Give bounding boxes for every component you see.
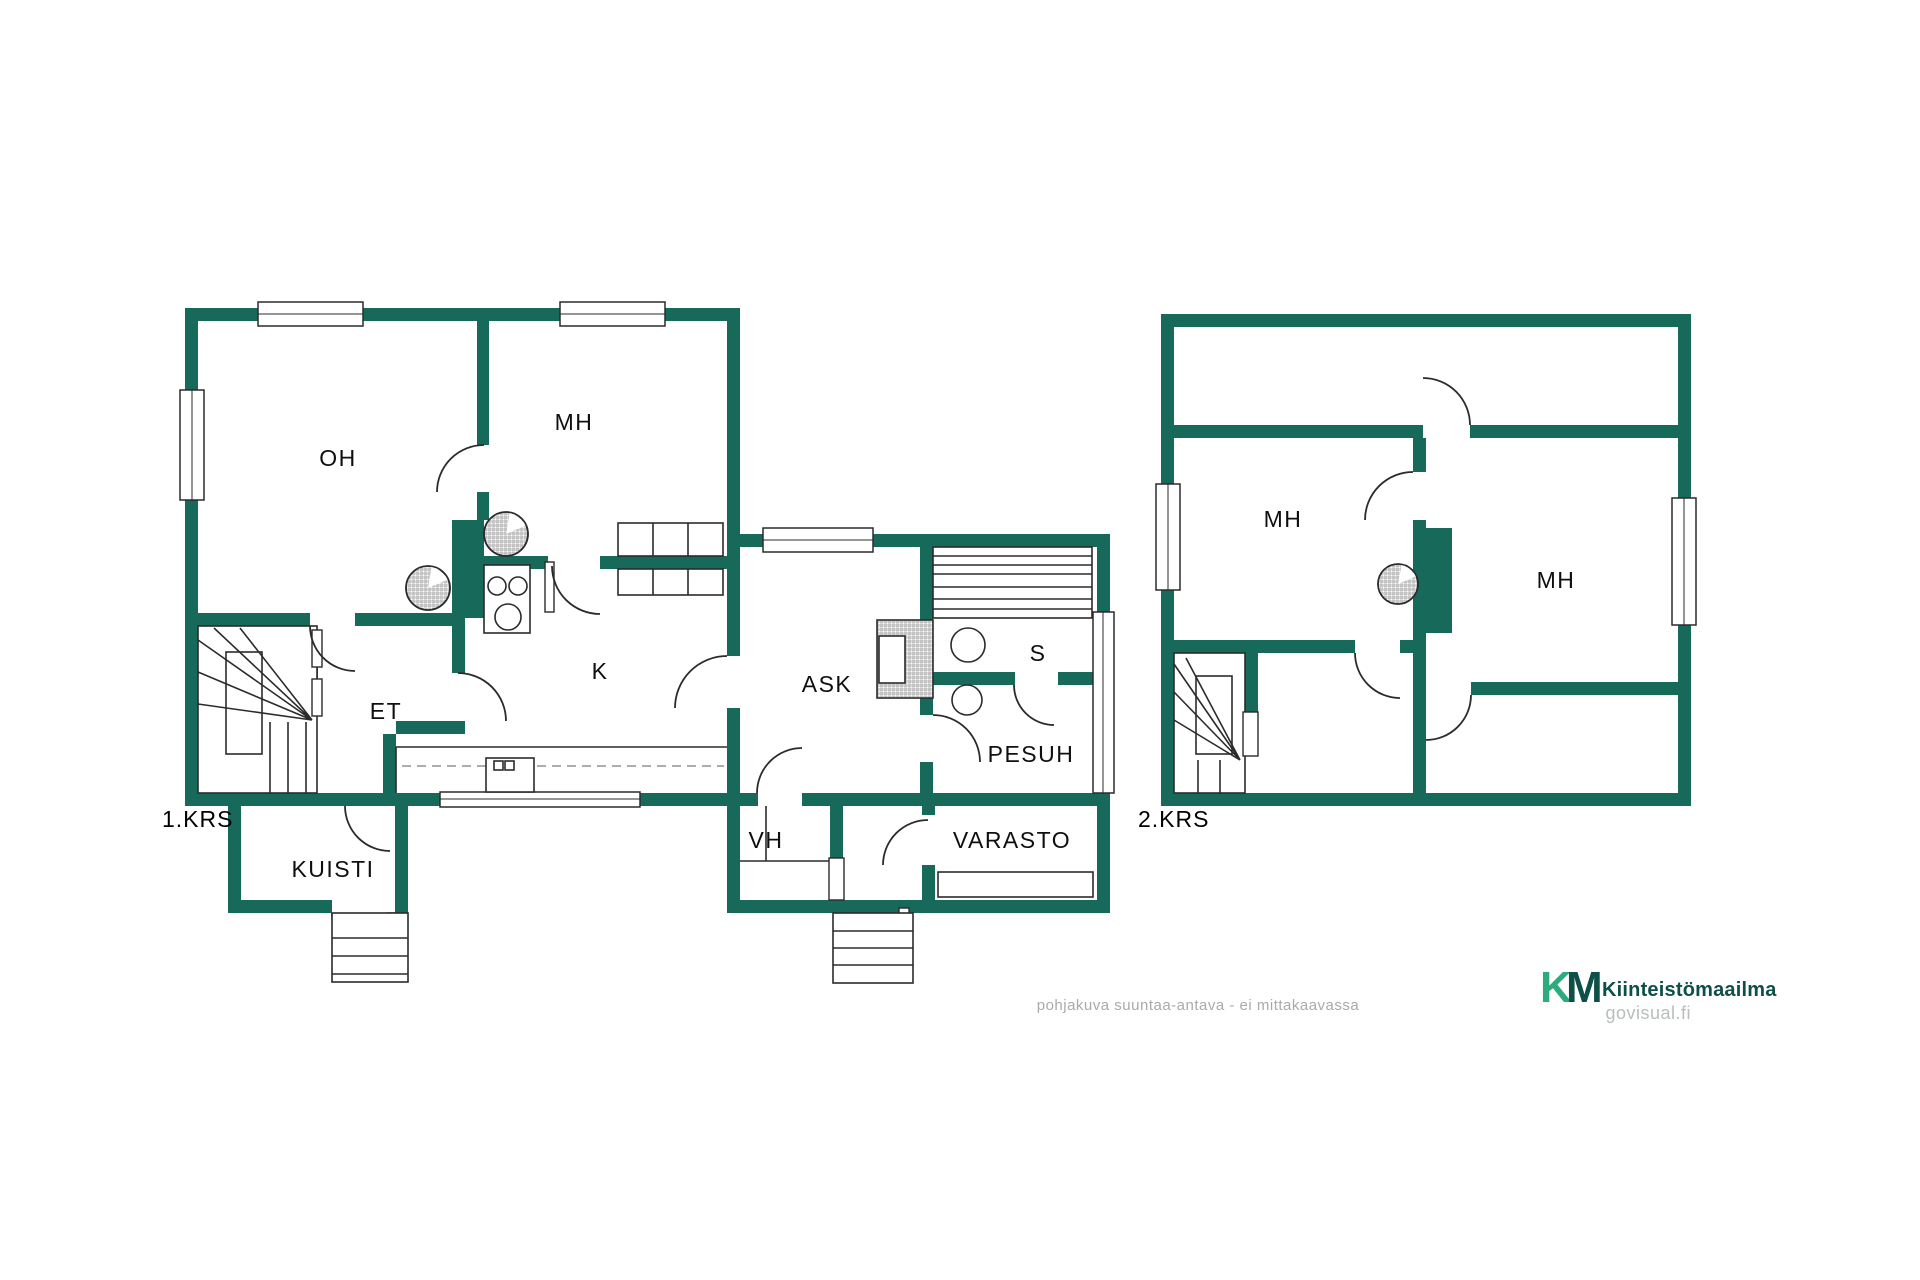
floorplan-drawing: OH MH K ET KUISTI ASK S PESUH VH VARASTO… (0, 0, 1920, 1280)
floor2-plan (1156, 314, 1696, 806)
porch-steps (332, 913, 408, 982)
floor1-stairs (198, 626, 317, 793)
window (1672, 498, 1696, 625)
room-label-vh: VH (749, 827, 784, 853)
room-label-varasto: VARASTO (953, 827, 1071, 853)
floor2-fireplace (1378, 562, 1418, 604)
room-label-pesuh: PESUH (988, 741, 1075, 767)
varasto-shelf (938, 872, 1093, 897)
stairwell-door (1243, 712, 1258, 756)
room-label-k: K (592, 658, 609, 684)
entrance-steps (833, 913, 913, 983)
fireplace-oh (406, 564, 450, 610)
water-heater (952, 685, 982, 715)
window (258, 302, 363, 326)
kitchen-sink (486, 758, 534, 792)
kitchen-counter (396, 747, 727, 793)
kitchen-stove (484, 565, 530, 633)
floor1-label: 1.KRS (162, 806, 233, 832)
sauna-benches (933, 547, 1092, 618)
floor1-plan (180, 302, 740, 982)
fireplace-mh (484, 510, 528, 556)
window (180, 390, 204, 500)
floor1-walls (185, 308, 740, 913)
window (440, 792, 640, 807)
floorplan-page: OH MH K ET KUISTI ASK S PESUH VH VARASTO… (0, 0, 1920, 1280)
footer: pohjakuva suuntaa-antava - ei mittakaava… (1037, 963, 1777, 1023)
window (1093, 612, 1114, 793)
window (1156, 484, 1180, 590)
site-link-text: govisual.fi (1605, 1003, 1691, 1023)
closet-door (312, 679, 322, 716)
floor1-chimney (452, 520, 484, 618)
window (763, 528, 873, 552)
room-label-mh2-right: MH (1537, 567, 1576, 593)
room-label-s: S (1030, 640, 1047, 666)
floor2-label: 2.KRS (1138, 806, 1209, 832)
sauna-stove (951, 628, 985, 662)
floor2-stairs (1174, 653, 1245, 793)
room-label-ask: ASK (802, 671, 853, 697)
floor2-chimney (1413, 528, 1452, 633)
annex-fireplace (877, 620, 933, 698)
disclaimer-text: pohjakuva suuntaa-antava - ei mittakaava… (1037, 997, 1360, 1014)
vh-closet (740, 806, 844, 900)
room-label-mh2-left: MH (1264, 506, 1303, 532)
room-label-kuisti: KUISTI (291, 856, 374, 882)
room-label-mh1: MH (555, 409, 594, 435)
vh-door (829, 858, 844, 900)
window (560, 302, 665, 326)
km-brand-name: Kiinteistömaailma (1602, 979, 1777, 1001)
km-logo-m-letter: M (1566, 963, 1603, 1012)
room-label-oh: OH (319, 445, 357, 471)
room-label-et: ET (370, 698, 402, 724)
closet-door (312, 630, 322, 667)
